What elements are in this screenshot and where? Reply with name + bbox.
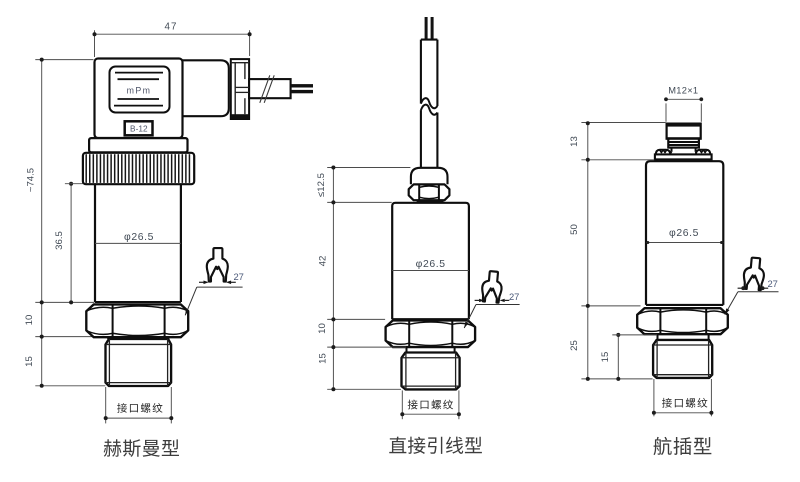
svg-text:φ26.5: φ26.5: [669, 228, 699, 239]
svg-text:φ26.5: φ26.5: [124, 232, 154, 243]
svg-text:36.5: 36.5: [54, 231, 65, 250]
svg-text:27: 27: [233, 271, 243, 282]
svg-text:50: 50: [569, 224, 580, 235]
svg-text:10: 10: [317, 323, 328, 334]
svg-text:15: 15: [24, 356, 35, 367]
svg-text:10: 10: [24, 315, 35, 326]
svg-text:mPm: mPm: [127, 86, 152, 96]
svg-text:27: 27: [767, 278, 777, 289]
svg-text:47: 47: [165, 21, 178, 32]
svg-text:25: 25: [569, 340, 580, 351]
svg-text:φ26.5: φ26.5: [416, 259, 446, 270]
svg-text:15: 15: [600, 352, 611, 363]
svg-text:~74.5: ~74.5: [26, 168, 37, 192]
svg-text:B-12: B-12: [130, 123, 148, 133]
svg-text:42: 42: [317, 256, 328, 267]
svg-text:15: 15: [317, 353, 328, 364]
svg-text:≤12.5: ≤12.5: [316, 173, 327, 197]
svg-text:27: 27: [509, 291, 519, 302]
svg-text:13: 13: [569, 136, 580, 147]
svg-text:M12×1: M12×1: [668, 85, 698, 95]
